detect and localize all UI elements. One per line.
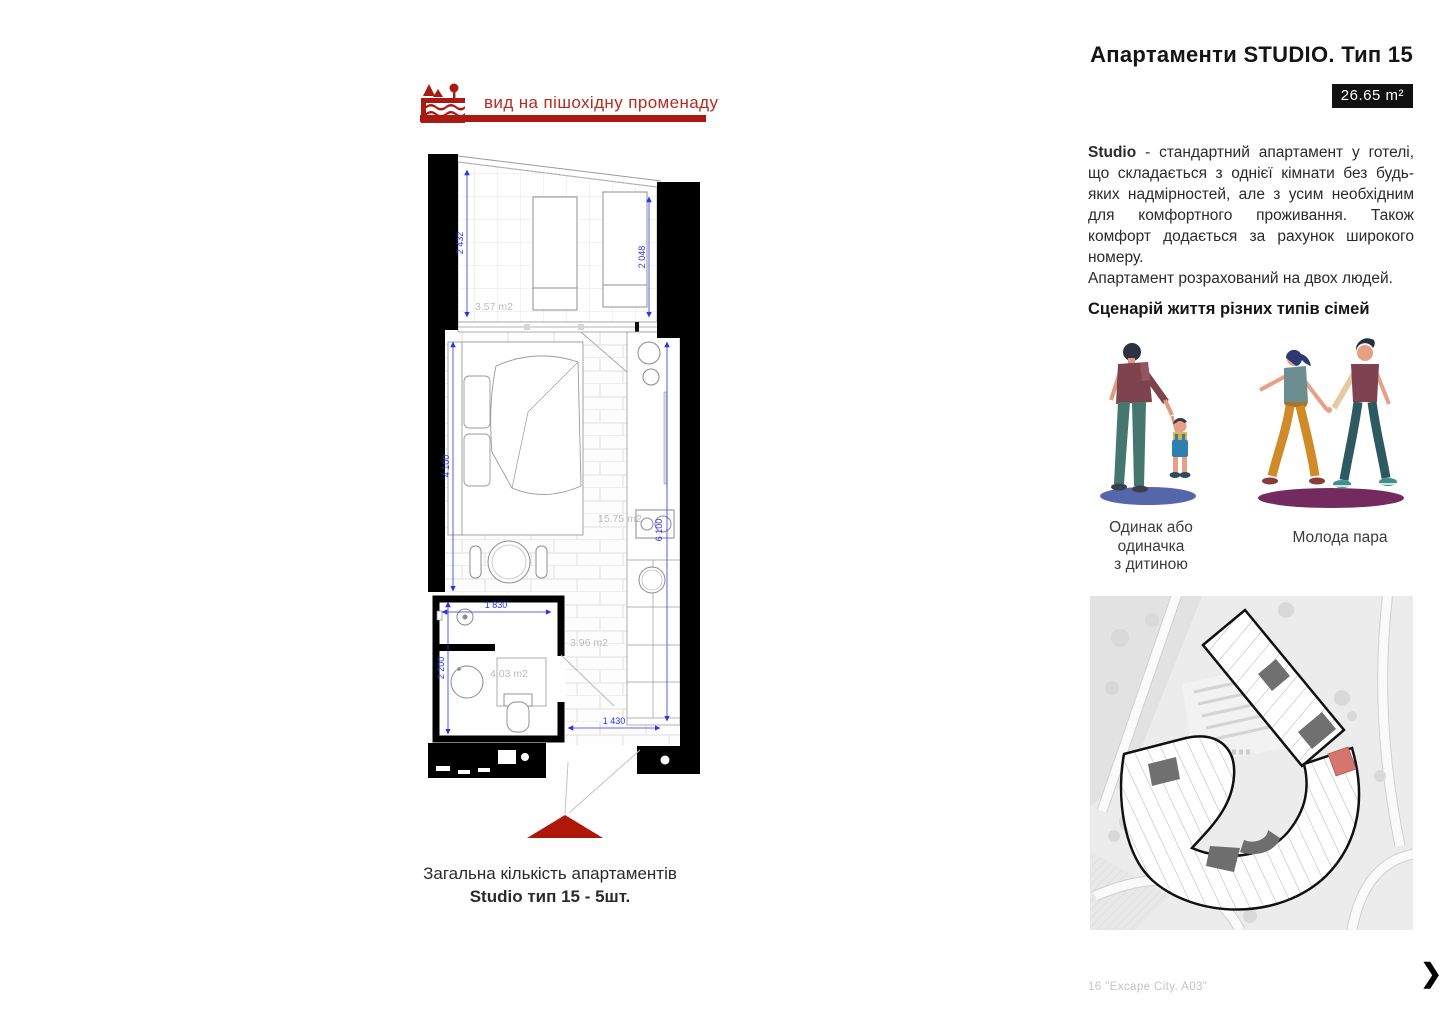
balcony (458, 156, 661, 322)
description-body: - стандартний апартамент у готелі, що ск… (1088, 144, 1414, 266)
dim-room-length: 6 100 (654, 519, 664, 542)
view-banner-label: вид на пішохідну променаду (484, 93, 718, 113)
dim-balcony-left: 2 432 (455, 232, 465, 255)
entrance-door-swing (565, 750, 640, 814)
area-hall: 3.96 m2 (570, 637, 608, 649)
entrance-marker (527, 815, 603, 838)
view-banner-underline (420, 115, 706, 122)
area-balcony: 3.57 m2 (475, 301, 513, 313)
bed (448, 342, 583, 535)
description-lead: Studio (1088, 144, 1136, 161)
area-room: 15.75 m2 (598, 513, 642, 525)
site-plan (1090, 596, 1413, 930)
dim-room-height: 4 100 (441, 455, 451, 478)
apartment-description: Studio - стандартний апартамент у готелі… (1088, 142, 1414, 290)
plan-caption-line1: Загальна кількість апартаментів (390, 864, 710, 884)
plan-caption-line2: Studio тип 15 - 5шт. (390, 887, 710, 907)
dim-hall-width: 1 430 (603, 716, 626, 726)
description-body2: Апартамент розрахований на двох людей. (1088, 268, 1414, 289)
scenario-heading: Сценарій життя різних типів сімей (1088, 300, 1414, 319)
young-couple-illustration (1248, 330, 1414, 514)
dim-bath-height: 2 200 (436, 657, 446, 680)
dim-shower-width: 1 830 (485, 600, 508, 610)
child-figure (1170, 416, 1191, 478)
caption-single-parent: Одинак або одиначка з дитиною (1076, 519, 1226, 575)
brochure-page: Апартаменти STUDIO. Тип 15 26.65 m² вид … (0, 0, 1448, 1024)
single-parent-with-child-illustration (1096, 336, 1202, 508)
area-badge: 26.65 m² (1332, 84, 1413, 108)
dim-balcony-right: 2 048 (637, 246, 647, 269)
man-figure (1326, 338, 1397, 488)
area-bathroom: 4.03 m2 (490, 668, 528, 680)
caption-young-couple: Молода пара (1258, 529, 1422, 548)
woman-figure (1260, 350, 1327, 485)
footer-caption: 16 "Excape City. A03" (1088, 981, 1207, 993)
adult-figure (1111, 343, 1172, 493)
plan-caption: Загальна кількість апартаментів Studio т… (390, 864, 710, 907)
next-page-arrow[interactable]: ❯ (1420, 960, 1442, 986)
page-title: Апартаменти STUDIO. Тип 15 (760, 42, 1413, 68)
floor-plan: 2 432 2 048 4 100 6 100 1 830 2 200 1 43… (428, 150, 700, 850)
